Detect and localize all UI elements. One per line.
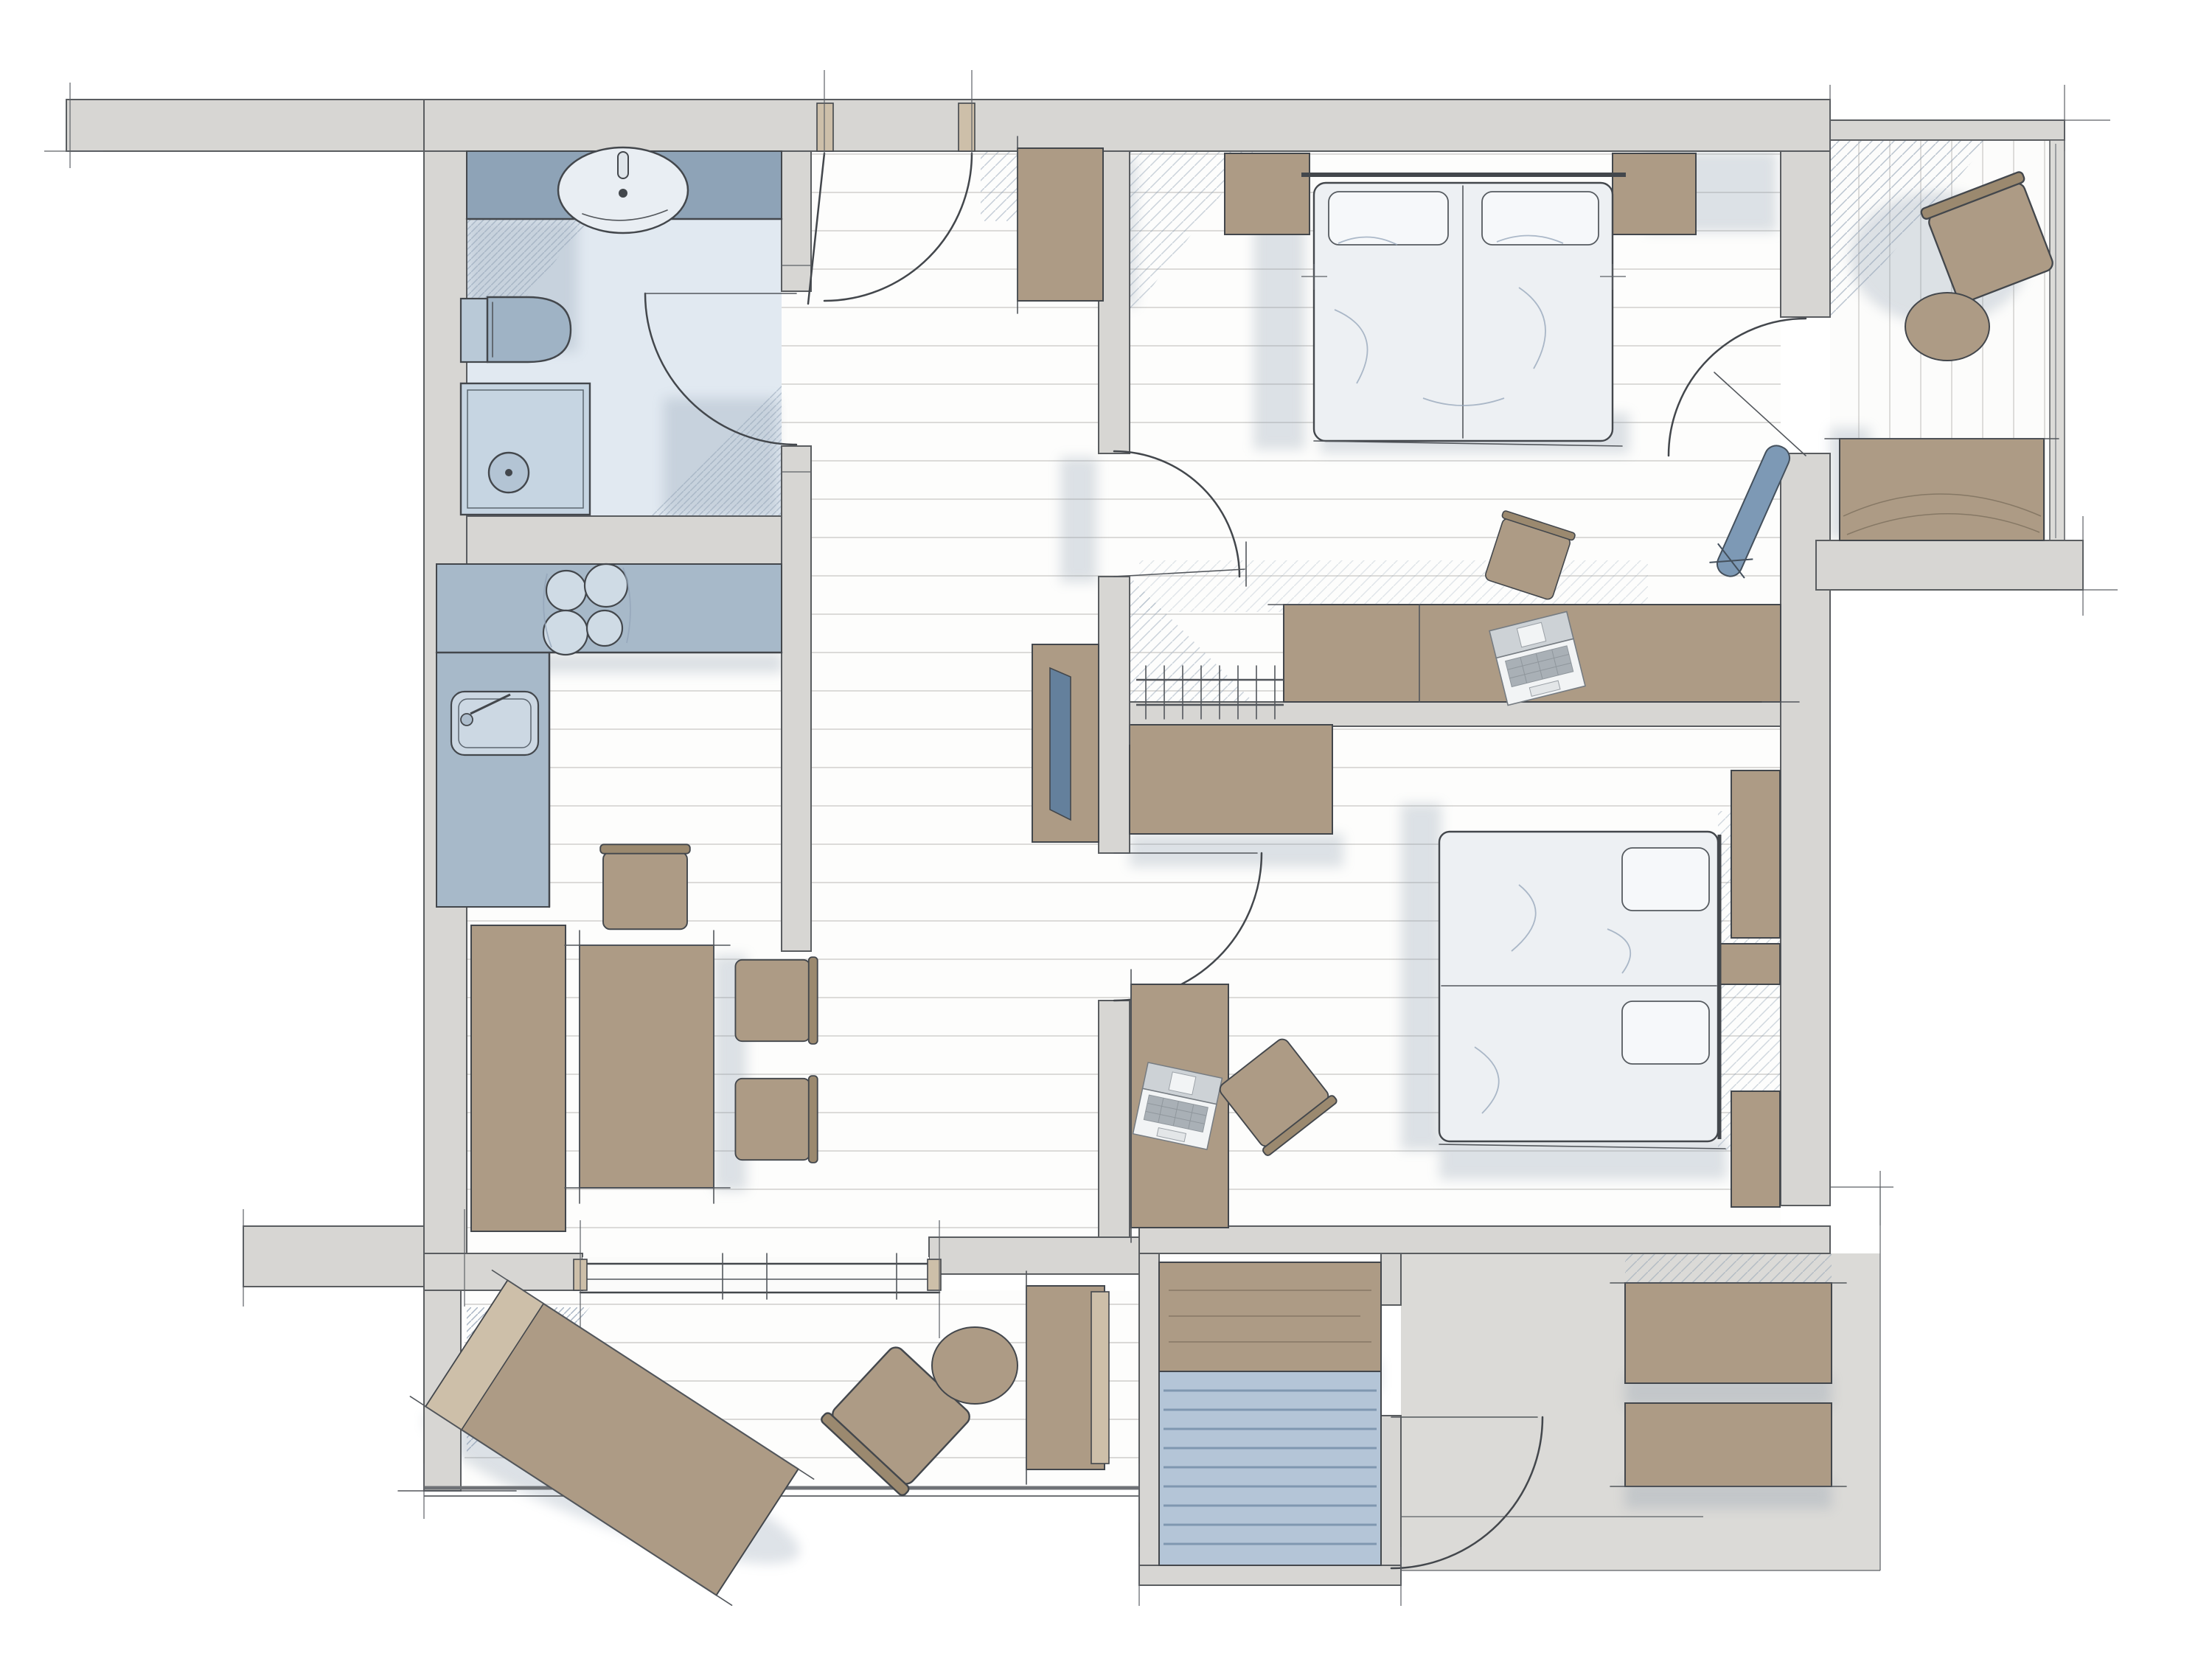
nightstand-right — [1613, 153, 1696, 234]
wall-left-stub-bottom — [243, 1226, 424, 1287]
toilet-bowl — [487, 297, 571, 362]
wardrobe-column-b — [1731, 1091, 1780, 1207]
terrace-bench-edge — [1091, 1292, 1109, 1464]
wall-sauna-bottom — [1139, 1565, 1401, 1585]
wall-sauna-left — [1139, 1253, 1159, 1585]
bed1-pillow-left — [1329, 192, 1448, 245]
floor-plan-sketch — [0, 0, 2212, 1656]
wall-bedroom2-left-lower — [1099, 1001, 1130, 1253]
storage-unit-1 — [1625, 1283, 1832, 1383]
sauna-bench — [1159, 1262, 1381, 1371]
sauna — [1159, 1262, 1381, 1565]
wall-balcony-top — [1830, 120, 2065, 140]
burner-1 — [546, 571, 586, 610]
wall-balcony-bottom — [1816, 540, 2083, 590]
balcony-bench — [1840, 439, 2044, 540]
faucet-icon — [618, 152, 628, 178]
tv-screen — [1050, 668, 1071, 820]
bed2-console — [1719, 944, 1780, 984]
dining-table — [580, 945, 714, 1188]
kitchen-counter-left — [437, 653, 549, 907]
wall-bedroom2-left-upper — [1099, 577, 1130, 853]
balcony-railing — [2050, 140, 2065, 540]
wall-bath-bottom — [467, 516, 782, 564]
wall-sauna-right-lower — [1381, 1416, 1401, 1565]
bed2-pillow-bottom — [1622, 1001, 1709, 1064]
wall-top-main — [424, 100, 1830, 151]
shower-drain-dot — [505, 469, 512, 476]
nightstand-left — [1225, 153, 1310, 234]
sideboard-bench — [471, 925, 566, 1231]
balcony-round-table — [1905, 293, 1989, 361]
wall-bath-right-upper — [782, 151, 811, 291]
toilet-tank — [461, 299, 487, 362]
wardrobe-column-a — [1731, 770, 1780, 938]
wall-bedroom1-right-upper — [1781, 151, 1830, 317]
burner-3 — [543, 610, 588, 655]
burner-4 — [587, 610, 622, 646]
kitchen-faucet — [461, 714, 473, 726]
terrace-round-table — [932, 1327, 1018, 1404]
hall-closet — [1018, 148, 1103, 301]
dining-chair-right-1 — [735, 957, 817, 1044]
dresser — [1130, 725, 1332, 834]
wall-living-bottom-left — [424, 1253, 582, 1290]
living-window-opening — [582, 1257, 929, 1290]
wall-sauna-right-upper — [1381, 1253, 1401, 1305]
entry-door-post-right — [959, 103, 975, 151]
bed2-pillow-top — [1622, 848, 1709, 911]
dressing-hatch — [1625, 1253, 1832, 1284]
entry-door-post-left — [817, 103, 833, 151]
drain-dot — [619, 189, 627, 198]
wall-living-bottom-right — [929, 1237, 1139, 1274]
burner-2 — [585, 564, 627, 607]
dining-chair-head — [600, 844, 690, 929]
wall-top-stub — [66, 100, 424, 151]
storage-unit-2 — [1625, 1403, 1832, 1486]
floor-plan-stage — [0, 0, 2212, 1656]
dining-chair-right-2 — [735, 1076, 817, 1163]
laptop-2 — [1133, 1062, 1222, 1149]
window-post-right — [928, 1259, 941, 1290]
wall-bedroom2-bottom — [1139, 1226, 1830, 1253]
shower-tray — [461, 383, 590, 515]
wall-kitchen-right — [782, 446, 811, 951]
